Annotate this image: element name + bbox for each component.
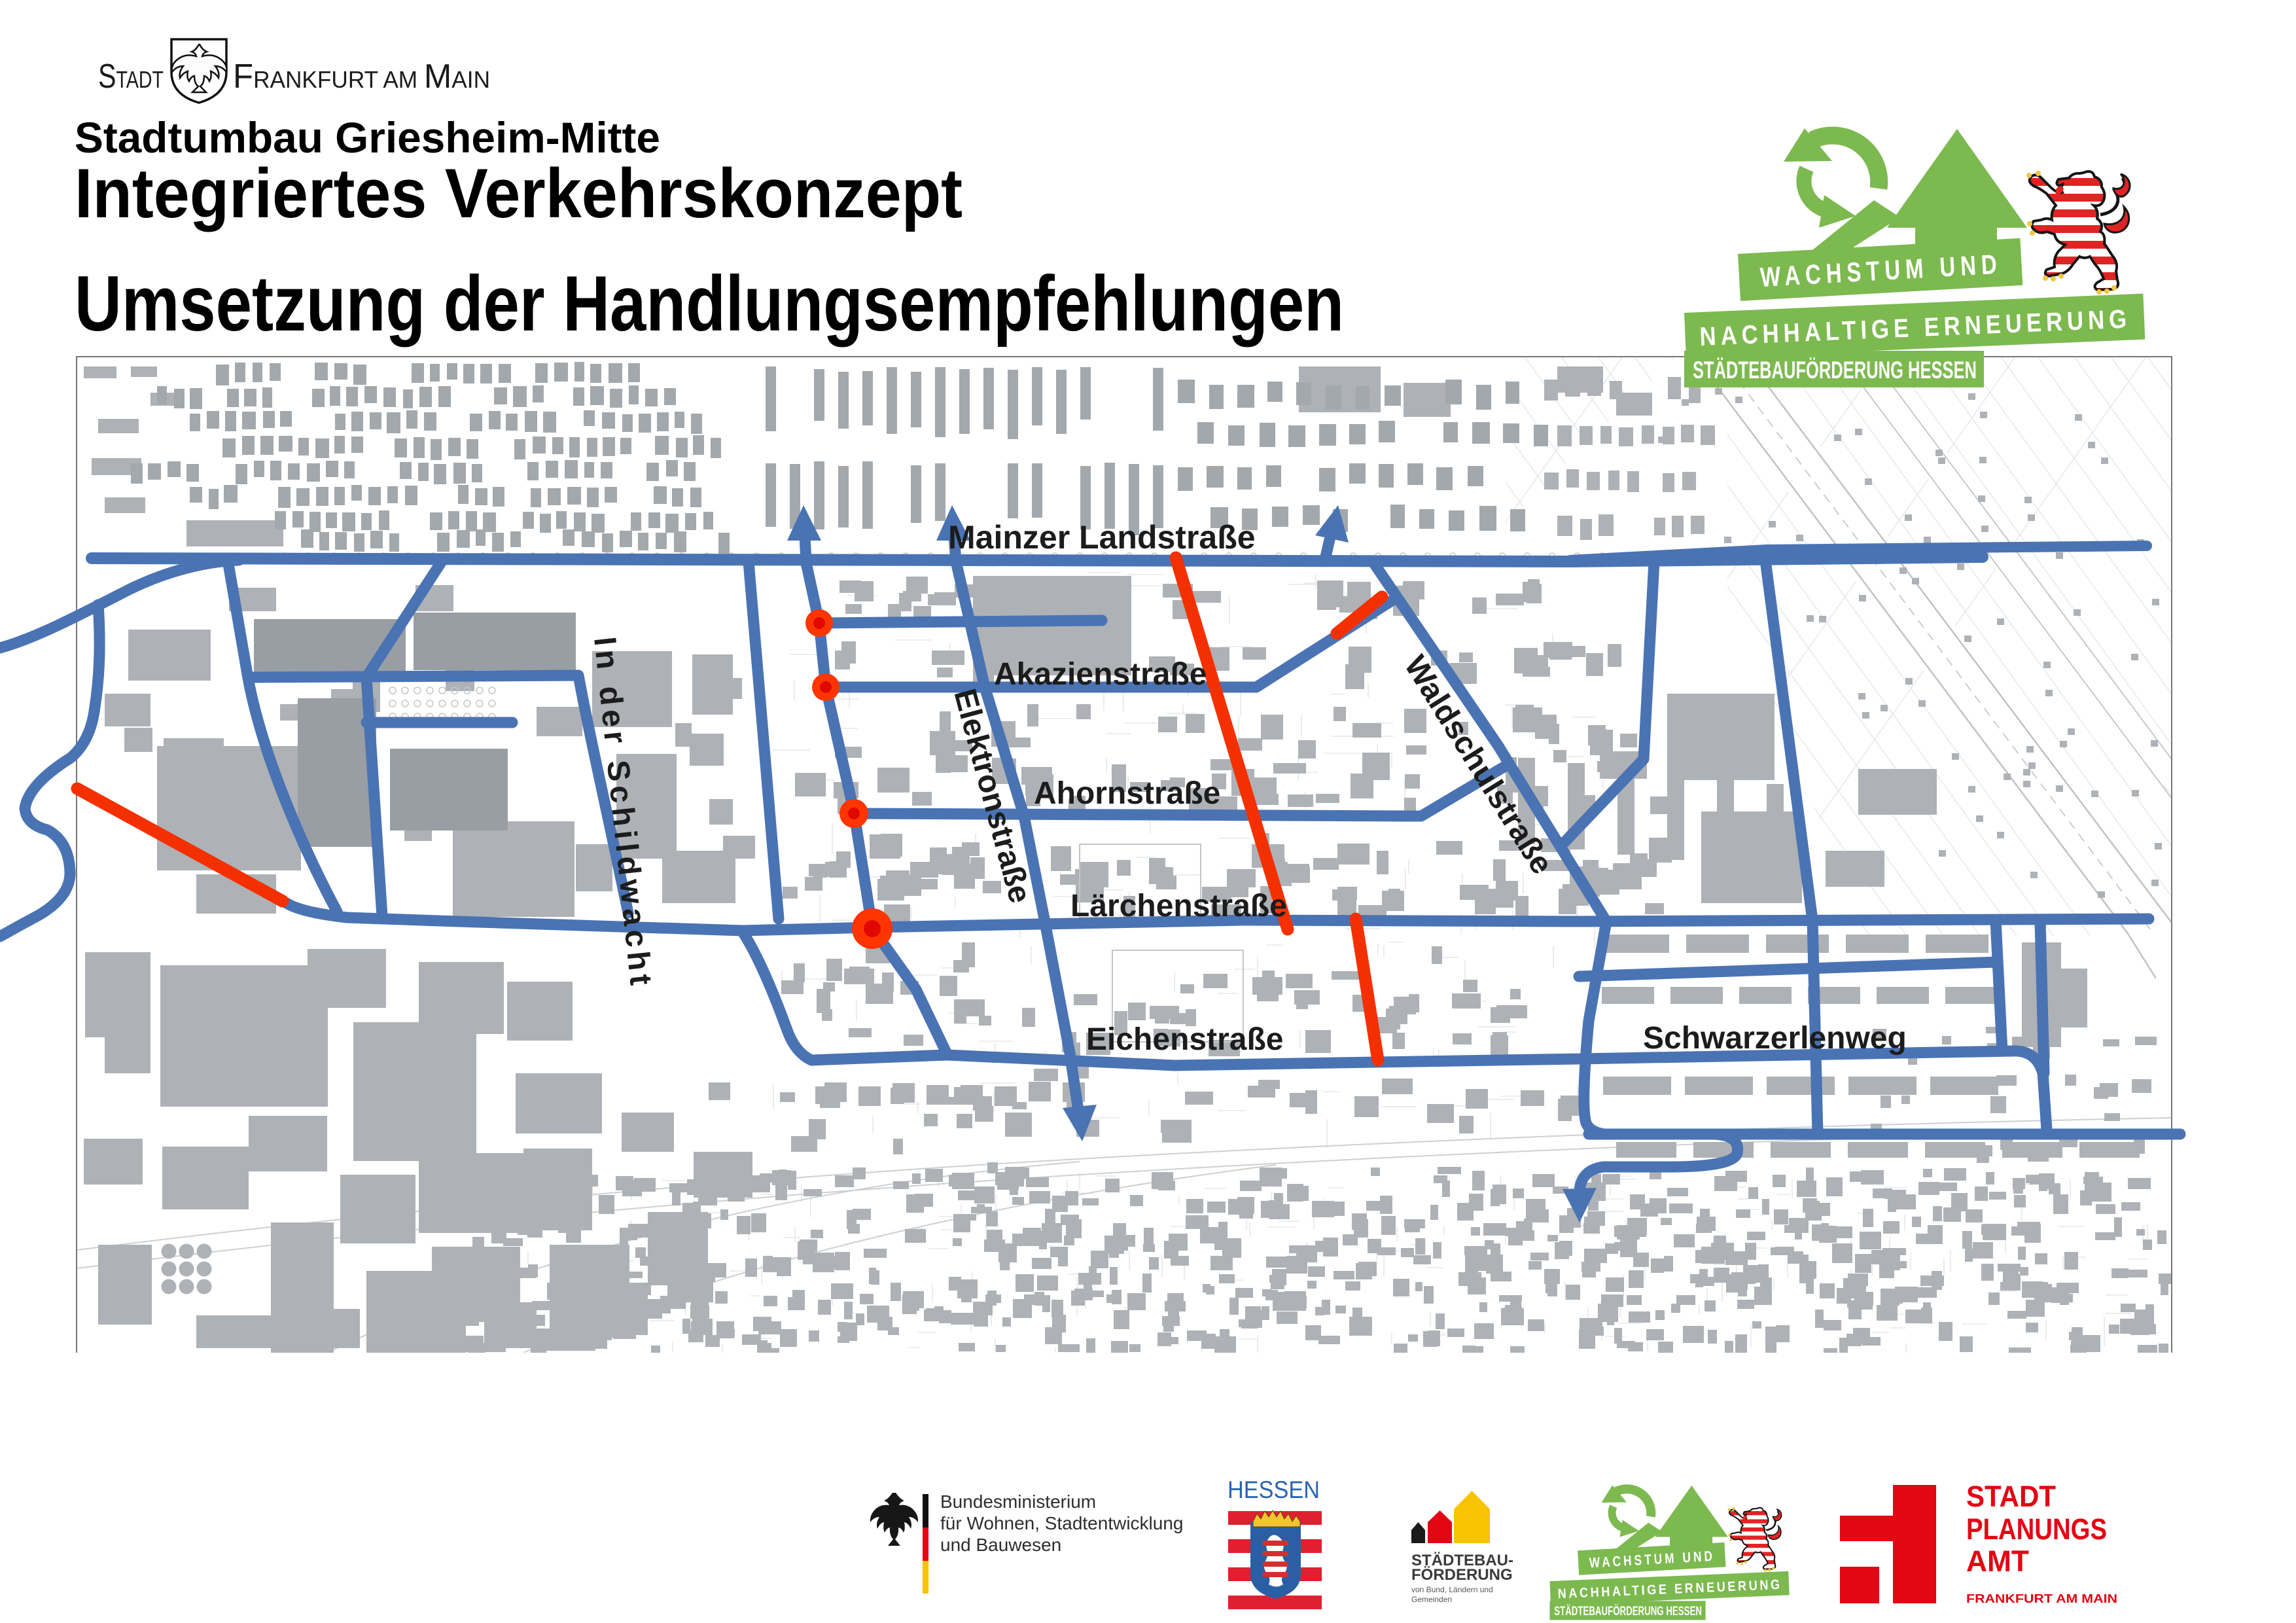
svg-text:AMT: AMT [1966, 1544, 2029, 1578]
svg-text:STADT: STADT [1966, 1480, 2056, 1513]
svg-text:Eichenstraße: Eichenstraße [1086, 1022, 1283, 1057]
svg-text:Mainzer Landstraße: Mainzer Landstraße [948, 519, 1256, 556]
svg-text:FRANKFURT AM MAIN: FRANKFURT AM MAIN [1966, 1592, 2117, 1605]
svg-text:FÖRDERUNG: FÖRDERUNG [1411, 1566, 1513, 1584]
svg-text:Akazienstraße: Akazienstraße [994, 657, 1207, 692]
svg-text:HESSEN: HESSEN [1227, 1476, 1320, 1503]
svg-text:Integriertes Verkehrskonzept: Integriertes Verkehrskonzept [75, 154, 963, 232]
svg-text:PLANUNGS: PLANUNGS [1966, 1512, 2107, 1546]
svg-text:und Bauwesen: und Bauwesen [940, 1535, 1061, 1555]
svg-text:Schwarzerlenweg: Schwarzerlenweg [1643, 1021, 1907, 1056]
svg-text:Ahornstraße: Ahornstraße [1034, 776, 1220, 811]
svg-text:Lärchenstraße: Lärchenstraße [1070, 889, 1287, 923]
svg-text:Umsetzung der Handlungsempfehl: Umsetzung der Handlungsempfehlungen [75, 260, 1344, 348]
svg-text:von Bund, Ländern und: von Bund, Ländern und [1411, 1585, 1493, 1594]
svg-text:für Wohnen, Stadtentwicklung: für Wohnen, Stadtentwicklung [940, 1513, 1183, 1533]
svg-text:Gemeinden: Gemeinden [1411, 1595, 1452, 1604]
svg-text:Bundesministerium: Bundesministerium [940, 1491, 1096, 1512]
